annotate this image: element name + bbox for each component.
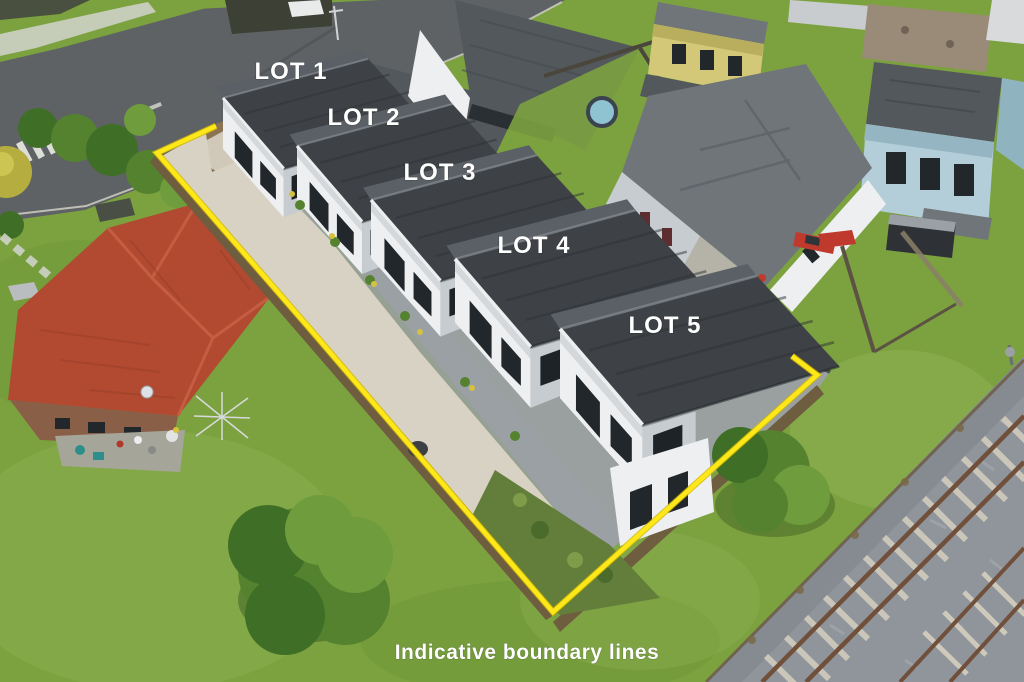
aerial-site-photo: LOT 1 LOT 2 LOT 3 LOT 4 LOT 5 Indicative… — [0, 0, 1024, 682]
satellite-dish — [141, 386, 153, 398]
lot-5-label: LOT 5 — [628, 312, 701, 339]
parked-car — [288, 0, 324, 17]
lot-3-label: LOT 3 — [403, 159, 476, 186]
boundary-caption: Indicative boundary lines — [395, 641, 660, 664]
swimming-pool — [588, 98, 616, 126]
deck — [55, 430, 185, 472]
lot-4-label: LOT 4 — [497, 232, 570, 259]
lot-2-label: LOT 2 — [327, 104, 400, 131]
aerial-photo-canvas: LOT 1 LOT 2 LOT 3 LOT 4 LOT 5 Indicative… — [0, 0, 1024, 682]
lot-1-label: LOT 1 — [254, 58, 327, 85]
